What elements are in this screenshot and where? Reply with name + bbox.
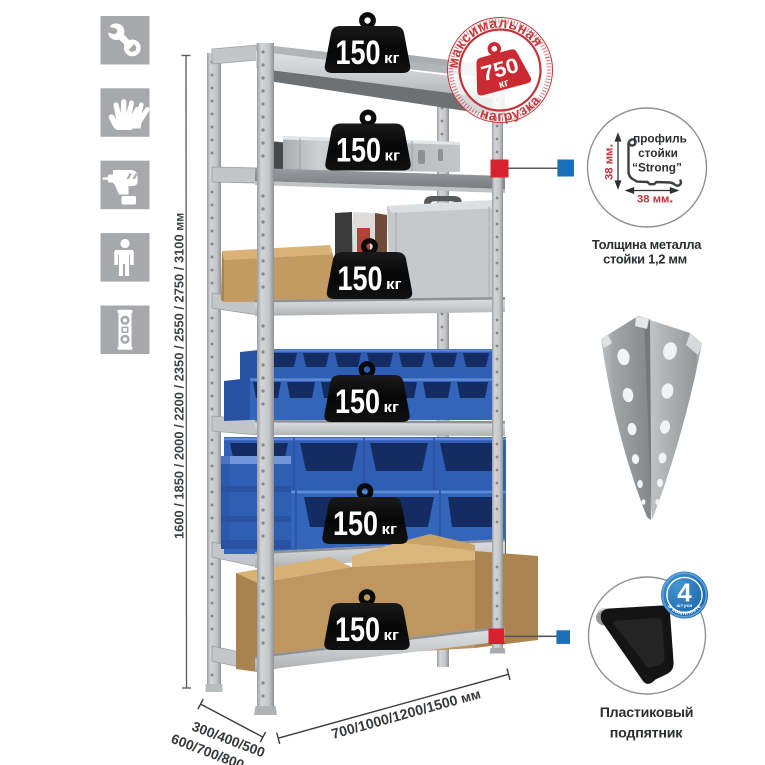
svg-text:150: 150: [336, 34, 381, 72]
svg-text:Толщина металла: Толщина металла: [592, 237, 702, 252]
svg-text:1600 / 1850 / 2000 / 2200 / 23: 1600 / 1850 / 2000 / 2200 / 2350 / 2550 …: [172, 213, 187, 539]
svg-text:150: 150: [335, 383, 380, 421]
svg-text:подпятник: подпятник: [610, 726, 684, 742]
svg-text:150: 150: [338, 260, 383, 298]
svg-text:стойки: стойки: [638, 146, 678, 160]
svg-text:кг: кг: [384, 50, 400, 67]
svg-text:кг: кг: [385, 148, 401, 165]
svg-text:штуки: штуки: [677, 604, 693, 609]
svg-text:кг: кг: [384, 627, 400, 644]
svg-text:150: 150: [335, 611, 380, 649]
svg-text:кг: кг: [386, 276, 402, 293]
svg-text:150: 150: [336, 132, 381, 170]
svg-text:Пластиковый: Пластиковый: [600, 705, 694, 721]
svg-text:кг: кг: [382, 521, 398, 538]
svg-text:“Strong”: “Strong”: [632, 161, 682, 175]
svg-text:150: 150: [333, 505, 378, 543]
svg-text:стойки 1,2 мм: стойки 1,2 мм: [603, 252, 687, 267]
svg-text:кг: кг: [384, 399, 400, 416]
svg-text:профиль: профиль: [633, 132, 687, 146]
